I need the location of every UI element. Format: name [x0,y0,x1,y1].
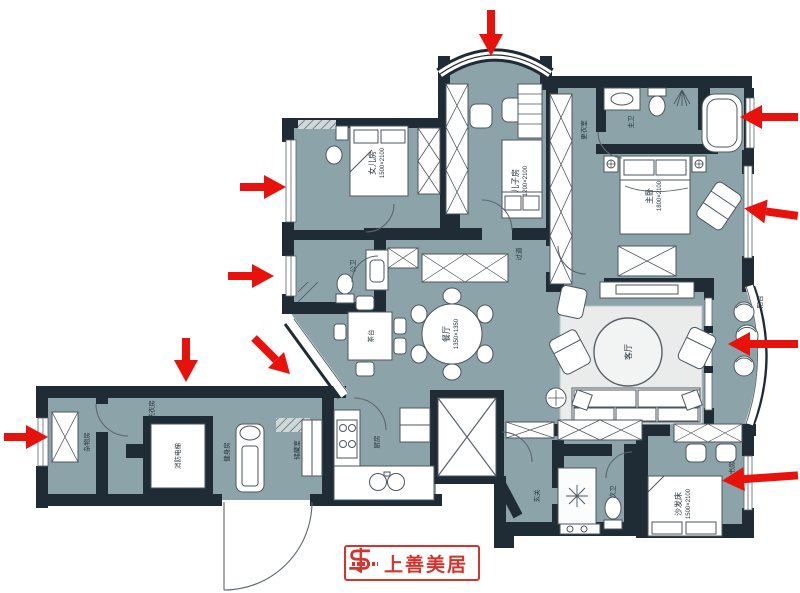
side-table [546,388,566,408]
label-storage: 储藏室 [292,440,301,460]
brand-name: 上善美居 [384,550,468,577]
brand-monogram-icon [352,561,378,566]
toilet [604,497,622,529]
brand-logo: 上善美居 [344,545,480,581]
chair [716,444,736,462]
svg-text:1800×2100: 1800×2100 [657,180,663,211]
label-daughter-room: 女儿房 1500×2100 [367,147,386,178]
svg-text:1200×2100: 1200×2100 [523,165,529,196]
svg-text:沙发床: 沙发床 [673,492,683,516]
hall-cabinet [388,248,418,268]
floor-plan-svg: 女儿房 1500×2100 儿子房 1200×2100 主卧 1800×2100… [0,0,800,593]
monogram-s-icon [346,547,374,573]
label-hallway: 过道 [514,247,523,261]
armchair [556,285,588,320]
son-bed [502,140,542,218]
floor-plan-page: 女儿房 1500×2100 儿子房 1200×2100 主卧 1800×2100… [0,0,800,593]
arrow-diagonal-bay [254,338,290,374]
label-study: 书房 [727,462,736,475]
living-wall-cabinet [558,420,642,440]
svg-text:1350×1350: 1350×1350 [454,318,460,349]
label-son-room: 儿子房 1200×2100 [510,165,529,196]
tv-cabinet [600,282,694,298]
piano-shelf [518,84,542,138]
arrow-down-laundry [174,338,198,382]
bath-vanity [560,524,600,534]
label-utility: 杂物房 [82,432,91,452]
stool [326,146,342,164]
label-guest-bath: 公卫 [349,259,357,273]
label-gym: 健身房 [222,442,231,462]
son-wardrobe [446,84,468,214]
svg-text:主卧: 主卧 [644,188,654,204]
nightstand [604,156,618,172]
label-kitchen: 厨房 [372,436,381,449]
utility-cabinet [52,412,78,462]
storage-cabinet [302,420,322,476]
vanity [604,88,640,110]
sofa-bed [648,476,722,536]
toilet [648,88,666,116]
master-bed [620,156,690,234]
label-sofa-bed: 沙发床 1500×2100 [673,488,692,519]
svg-text:1500×2100: 1500×2100 [380,147,386,178]
toilet [336,274,354,303]
label-foyer: 玄关 [532,489,541,503]
svg-text:儿子房: 儿子房 [510,169,520,193]
svg-text:女儿房: 女儿房 [367,151,377,175]
master-foot-cabinet [618,246,676,276]
label-living: 客厅 [623,344,633,360]
nightstand [692,156,706,172]
dressing-wardrobe [550,94,572,284]
arrow-right-daughter [240,175,286,199]
label-elevator: 消防电梯 [173,443,182,470]
entry-cabinet [506,422,554,438]
bathtub [702,94,742,152]
shower-stall [558,468,596,524]
label-dressing: 更衣室 [579,120,588,140]
chair [470,104,492,128]
arrow-right-guest-bath [228,264,274,288]
label-tea-table: 茶台 [366,330,375,343]
daughter-bed [350,126,408,196]
hall-cabinet [422,254,508,282]
chair [686,444,706,462]
svg-text:餐厅: 餐厅 [442,326,451,342]
label-second-bath: 次卫 [608,485,617,499]
label-balcony: 阳台 [755,296,764,309]
study-cabinet [674,424,742,442]
label-master-bath: 主卫 [626,115,635,129]
sofa [572,388,703,422]
label-laundry: 洗衣房 [147,400,156,420]
daughter-wardrobe [418,128,440,194]
treadmill [236,424,264,492]
nightstand [336,126,348,140]
svg-text:1500×2100: 1500×2100 [686,488,692,519]
